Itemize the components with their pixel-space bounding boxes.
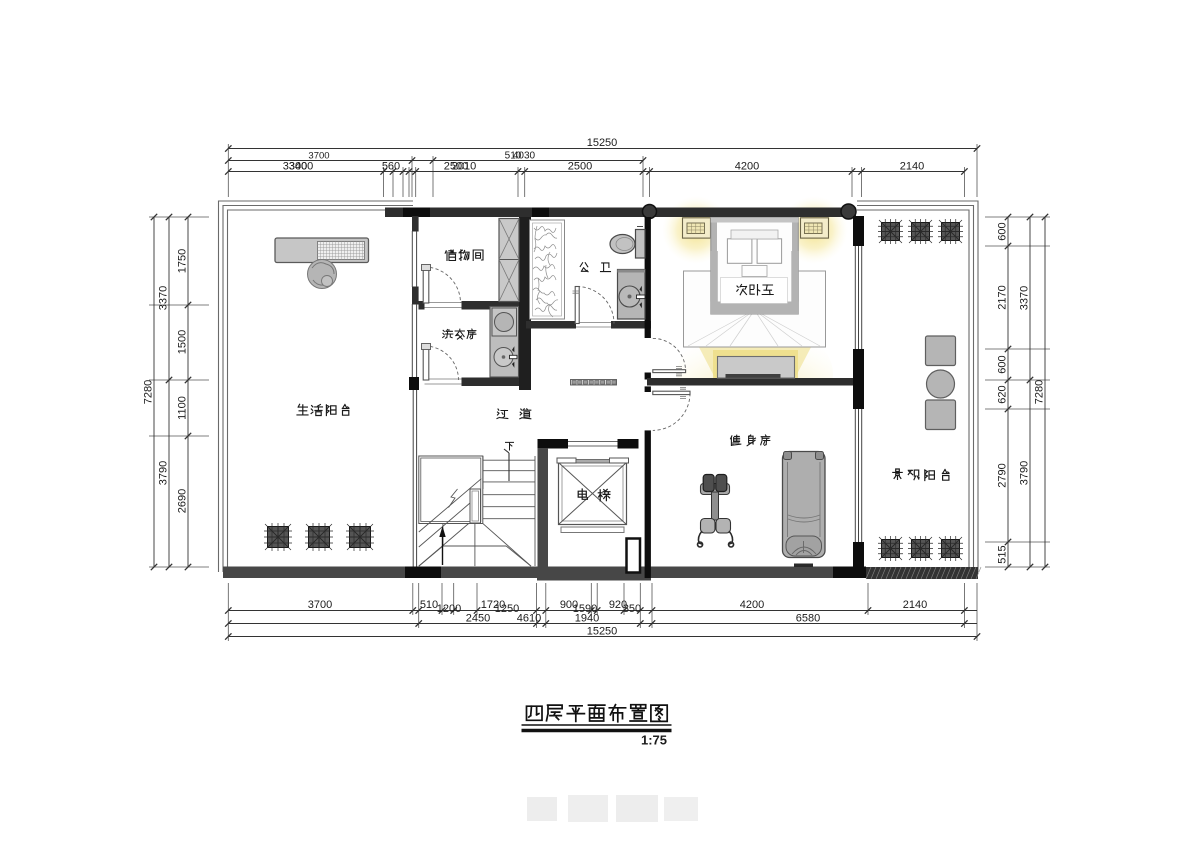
svg-text:1250: 1250 [495,603,519,615]
svg-text:15250: 15250 [587,137,618,149]
svg-text:1100: 1100 [177,396,189,420]
svg-text:620: 620 [997,385,1009,403]
svg-text:2140: 2140 [900,161,924,173]
svg-text:1940: 1940 [575,613,599,625]
svg-text:1:75: 1:75 [641,733,667,748]
svg-text:3400: 3400 [289,161,313,173]
svg-text:3370: 3370 [158,286,170,310]
svg-text:4610: 4610 [517,613,541,625]
svg-text:4200: 4200 [740,599,764,611]
svg-text:4200: 4200 [735,161,759,173]
svg-text:4030: 4030 [513,151,536,162]
svg-text:510: 510 [420,599,438,611]
svg-text:2010: 2010 [452,161,476,173]
svg-text:2790: 2790 [997,463,1009,487]
svg-text:1200: 1200 [437,603,461,615]
svg-text:1500: 1500 [177,330,189,354]
svg-text:15250: 15250 [587,626,618,638]
svg-text:2450: 2450 [466,613,490,625]
svg-text:560: 560 [382,161,400,173]
svg-text:350: 350 [623,603,641,615]
svg-text:6580: 6580 [796,613,820,625]
svg-text:2170: 2170 [997,285,1009,309]
svg-text:2140: 2140 [903,599,927,611]
svg-text:3700: 3700 [308,599,332,611]
svg-text:7280: 7280 [143,380,155,404]
svg-text:600: 600 [997,355,1009,373]
svg-text:515: 515 [997,545,1009,563]
svg-text:600: 600 [997,222,1009,240]
svg-text:3370: 3370 [1019,286,1031,310]
svg-text:2690: 2690 [177,489,189,513]
svg-text:3790: 3790 [158,461,170,485]
svg-text:7280: 7280 [1034,380,1046,404]
svg-text:2500: 2500 [568,161,592,173]
svg-text:3790: 3790 [1019,461,1031,485]
svg-text:1750: 1750 [177,249,189,273]
